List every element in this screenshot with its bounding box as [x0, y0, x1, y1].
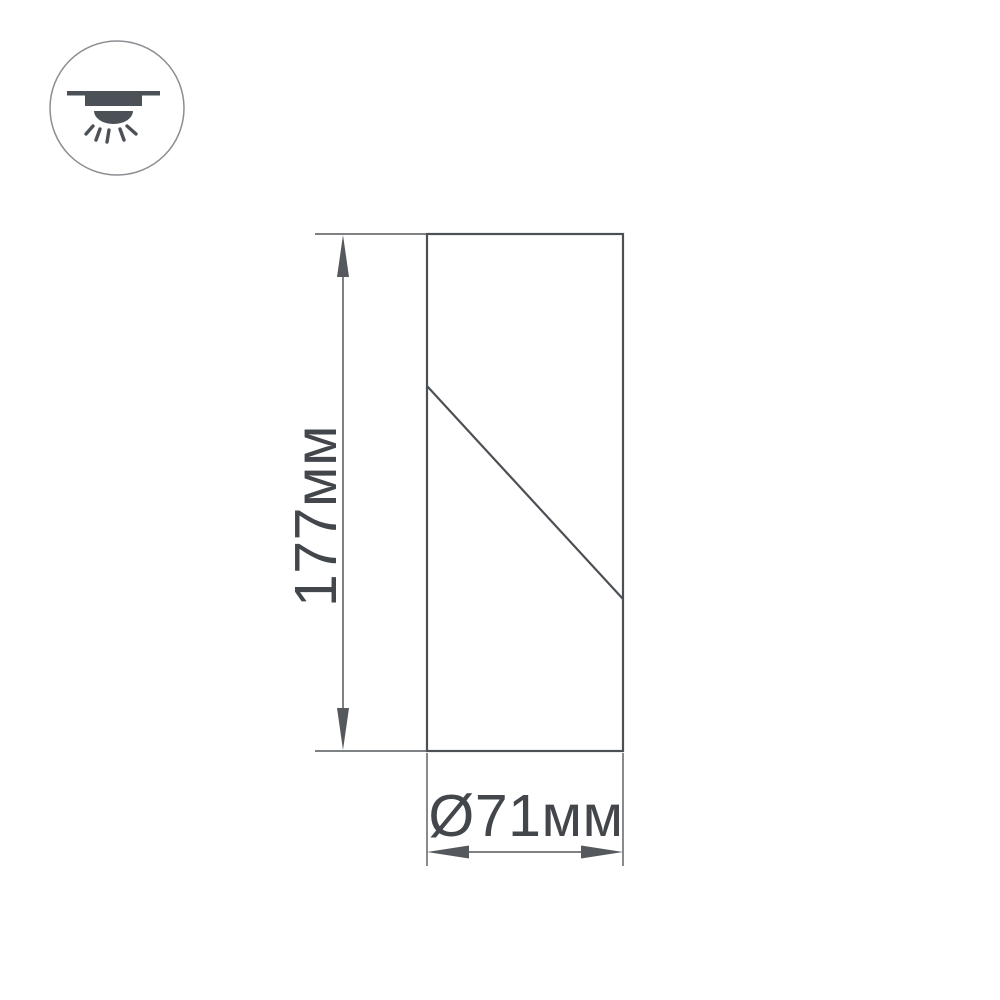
height-dimension-label: 177мм — [283, 425, 349, 607]
product-seam-line — [427, 386, 623, 599]
arrow-up-icon — [337, 235, 349, 277]
arrow-down-icon — [337, 708, 349, 750]
product-dimension-page: { "page": { "type": "technical-dimension… — [0, 0, 1000, 1000]
dimension-drawing: 177мм Ø71мм — [0, 0, 1000, 1000]
diameter-dimension-label: Ø71мм — [428, 783, 623, 849]
